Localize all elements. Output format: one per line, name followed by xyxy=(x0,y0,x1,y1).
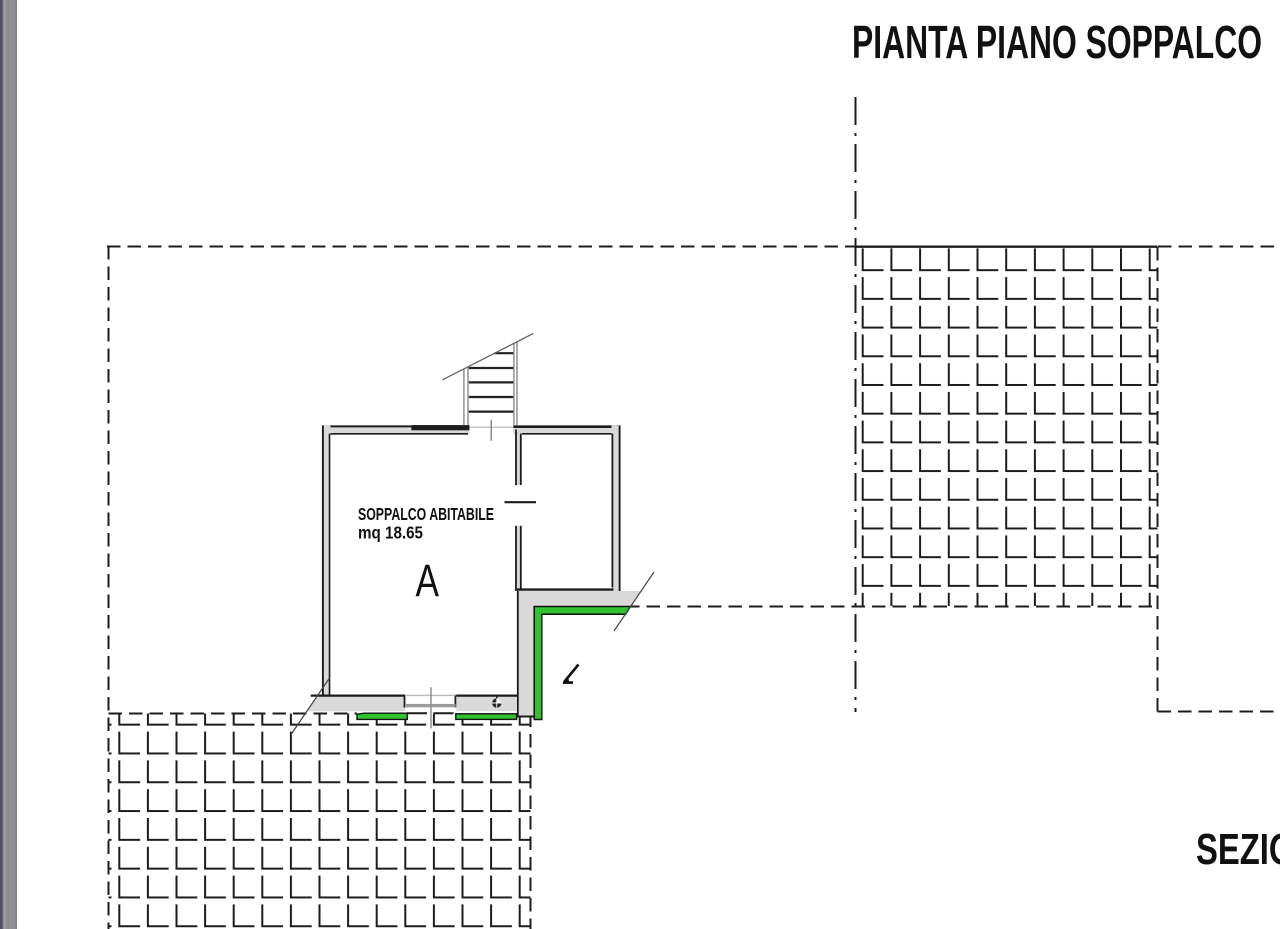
svg-text:SOPPALCO ABITABILE: SOPPALCO ABITABILE xyxy=(358,504,494,524)
svg-text:SEZIONE: SEZIONE xyxy=(1196,825,1280,874)
svg-text:PIANTA PIANO SOPPALCO: PIANTA PIANO SOPPALCO xyxy=(852,16,1262,68)
svg-text:mq 18.65: mq 18.65 xyxy=(358,523,423,543)
svg-text:A: A xyxy=(416,555,440,606)
